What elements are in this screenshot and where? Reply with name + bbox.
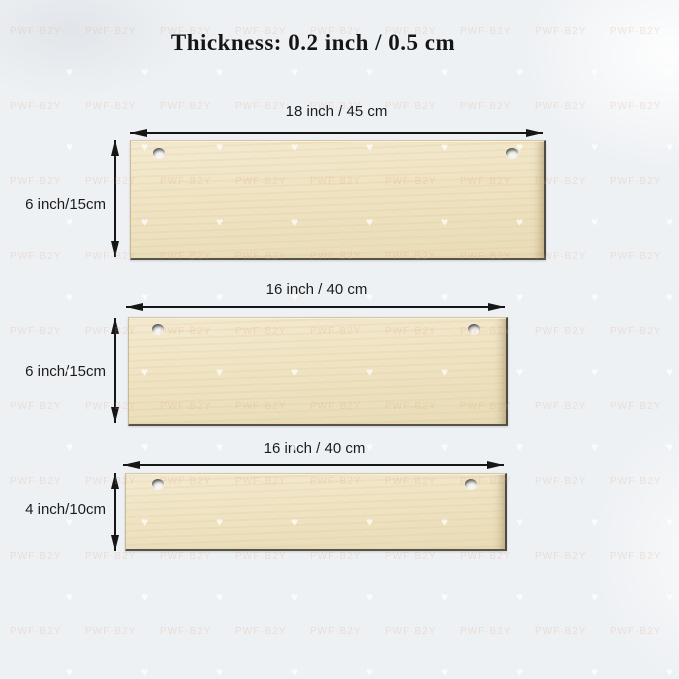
brand-watermark-text: PWF·B2Y — [610, 627, 661, 637]
heart-watermark-icon: ♥ — [216, 666, 223, 678]
brand-watermark-text: PWF·B2Y — [235, 627, 286, 637]
heart-watermark-icon: ♥ — [66, 666, 73, 678]
width-dimension-arrow — [130, 129, 543, 137]
heart-watermark-icon: ♥ — [666, 216, 673, 228]
heart-watermark-icon: ♥ — [216, 0, 223, 3]
heart-watermark-icon: ♥ — [666, 0, 673, 3]
height-dimension-arrow — [111, 318, 119, 423]
heart-watermark-icon: ♥ — [516, 0, 523, 3]
brand-watermark-text: PWF·B2Y — [610, 27, 661, 37]
wooden-board-18x6 — [130, 140, 546, 260]
width-dimension-label: 16 inch / 40 cm — [128, 281, 505, 299]
heart-watermark-icon: ♥ — [591, 366, 598, 378]
heart-watermark-icon: ♥ — [141, 66, 148, 78]
brand-watermark-text: PWF·B2Y — [10, 102, 61, 112]
heart-watermark-icon: ♥ — [591, 216, 598, 228]
heart-watermark-icon: ♥ — [366, 0, 373, 3]
width-dimension-arrow — [126, 303, 505, 311]
brand-watermark-text: PWF·B2Y — [535, 327, 586, 337]
height-dimension-label: 6 inch/15cm — [2, 196, 106, 214]
heart-watermark-icon: ♥ — [516, 366, 523, 378]
brand-watermark-text: PWF·B2Y — [160, 627, 211, 637]
heart-watermark-icon: ♥ — [291, 591, 298, 603]
brand-watermark-text: PWF·B2Y — [385, 552, 436, 562]
brand-watermark-text: PWF·B2Y — [385, 627, 436, 637]
brand-watermark-text: PWF·B2Y — [535, 552, 586, 562]
brand-watermark-text: PWF·B2Y — [10, 477, 61, 487]
brand-watermark-text: PWF·B2Y — [610, 177, 661, 187]
heart-watermark-icon: ♥ — [516, 441, 523, 453]
brand-watermark-text: PWF·B2Y — [310, 627, 361, 637]
heart-watermark-icon: ♥ — [666, 66, 673, 78]
brand-watermark-text: PWF·B2Y — [10, 552, 61, 562]
height-dimension-arrow — [111, 140, 119, 257]
brand-watermark-text: PWF·B2Y — [85, 627, 136, 637]
brand-watermark-text: PWF·B2Y — [535, 402, 586, 412]
heart-watermark-icon: ♥ — [66, 441, 73, 453]
heart-watermark-icon: ♥ — [366, 666, 373, 678]
brand-watermark-text: PWF·B2Y — [10, 402, 61, 412]
product-dimension-diagram: ♥PWF·B2Y♥PWF·B2Y♥PWF·B2Y♥PWF·B2Y♥PWF·B2Y… — [0, 0, 679, 679]
heart-watermark-icon: ♥ — [591, 0, 598, 3]
hanging-hole-right — [506, 148, 518, 158]
heart-watermark-icon: ♥ — [441, 591, 448, 603]
heart-watermark-icon: ♥ — [591, 66, 598, 78]
brand-watermark-text: PWF·B2Y — [610, 327, 661, 337]
heart-watermark-icon: ♥ — [591, 291, 598, 303]
heart-watermark-icon: ♥ — [66, 0, 73, 3]
brand-watermark-text: PWF·B2Y — [235, 552, 286, 562]
height-dimension-label: 6 inch/15cm — [2, 363, 106, 381]
heart-watermark-icon: ♥ — [441, 0, 448, 3]
brand-watermark-text: PWF·B2Y — [460, 552, 511, 562]
width-dimension-label: 18 inch / 45 cm — [130, 103, 543, 121]
brand-watermark-text: PWF·B2Y — [10, 627, 61, 637]
brand-watermark-text: PWF·B2Y — [310, 552, 361, 562]
brand-watermark-text: PWF·B2Y — [610, 402, 661, 412]
height-dimension-label: 4 inch/10cm — [2, 501, 106, 519]
brand-watermark-text: PWF·B2Y — [160, 552, 211, 562]
brand-watermark-text: PWF·B2Y — [10, 177, 61, 187]
heart-watermark-icon: ♥ — [366, 66, 373, 78]
heart-watermark-icon: ♥ — [591, 516, 598, 528]
heart-watermark-icon: ♥ — [666, 291, 673, 303]
heart-watermark-icon: ♥ — [591, 666, 598, 678]
brand-watermark-text: PWF·B2Y — [85, 27, 136, 37]
brand-watermark-text: PWF·B2Y — [610, 477, 661, 487]
thickness-title: Thickness: 0.2 inch / 0.5 cm — [171, 30, 455, 56]
heart-watermark-icon: ♥ — [666, 666, 673, 678]
heart-watermark-icon: ♥ — [516, 291, 523, 303]
heart-watermark-icon: ♥ — [666, 441, 673, 453]
heart-watermark-icon: ♥ — [516, 591, 523, 603]
brand-watermark-text: PWF·B2Y — [85, 102, 136, 112]
heart-watermark-icon: ♥ — [141, 666, 148, 678]
wooden-board-16x6 — [128, 317, 508, 426]
heart-watermark-icon: ♥ — [291, 66, 298, 78]
width-dimension-arrow — [123, 461, 504, 469]
heart-watermark-icon: ♥ — [216, 66, 223, 78]
heart-watermark-icon: ♥ — [141, 591, 148, 603]
heart-watermark-icon: ♥ — [291, 666, 298, 678]
heart-watermark-icon: ♥ — [516, 516, 523, 528]
brand-watermark-text: PWF·B2Y — [610, 102, 661, 112]
heart-watermark-icon: ♥ — [666, 141, 673, 153]
width-dimension-label: 16 inch / 40 cm — [125, 440, 504, 458]
heart-watermark-icon: ♥ — [216, 591, 223, 603]
heart-watermark-icon: ♥ — [66, 216, 73, 228]
hanging-hole-left — [152, 324, 164, 334]
heart-watermark-icon: ♥ — [516, 666, 523, 678]
brand-watermark-text: PWF·B2Y — [535, 627, 586, 637]
height-dimension-arrow — [111, 473, 119, 551]
heart-watermark-icon: ♥ — [666, 516, 673, 528]
heart-watermark-icon: ♥ — [591, 441, 598, 453]
heart-watermark-icon: ♥ — [516, 66, 523, 78]
brand-watermark-text: PWF·B2Y — [460, 627, 511, 637]
brand-watermark-text: PWF·B2Y — [10, 327, 61, 337]
heart-watermark-icon: ♥ — [366, 591, 373, 603]
heart-watermark-icon: ♥ — [141, 0, 148, 3]
heart-watermark-icon: ♥ — [66, 141, 73, 153]
hanging-hole-left — [153, 148, 165, 158]
brand-watermark-text: PWF·B2Y — [610, 252, 661, 262]
heart-watermark-icon: ♥ — [666, 591, 673, 603]
brand-watermark-text: PWF·B2Y — [535, 27, 586, 37]
wooden-board-16x4 — [125, 473, 507, 551]
heart-watermark-icon: ♥ — [441, 66, 448, 78]
brand-watermark-text: PWF·B2Y — [85, 552, 136, 562]
heart-watermark-icon: ♥ — [291, 0, 298, 3]
brand-watermark-text: PWF·B2Y — [460, 27, 511, 37]
brand-watermark-text: PWF·B2Y — [10, 252, 61, 262]
hanging-hole-left — [152, 479, 164, 489]
heart-watermark-icon: ♥ — [441, 666, 448, 678]
light-blob — [590, 410, 679, 679]
hanging-hole-right — [465, 479, 477, 489]
brand-watermark-text: PWF·B2Y — [610, 552, 661, 562]
heart-watermark-icon: ♥ — [66, 66, 73, 78]
heart-watermark-icon: ♥ — [591, 591, 598, 603]
brand-watermark-text: PWF·B2Y — [535, 477, 586, 487]
hanging-hole-right — [468, 324, 480, 334]
heart-watermark-icon: ♥ — [666, 366, 673, 378]
heart-watermark-icon: ♥ — [66, 291, 73, 303]
brand-watermark-text: PWF·B2Y — [10, 27, 61, 37]
heart-watermark-icon: ♥ — [66, 591, 73, 603]
heart-watermark-icon: ♥ — [591, 141, 598, 153]
